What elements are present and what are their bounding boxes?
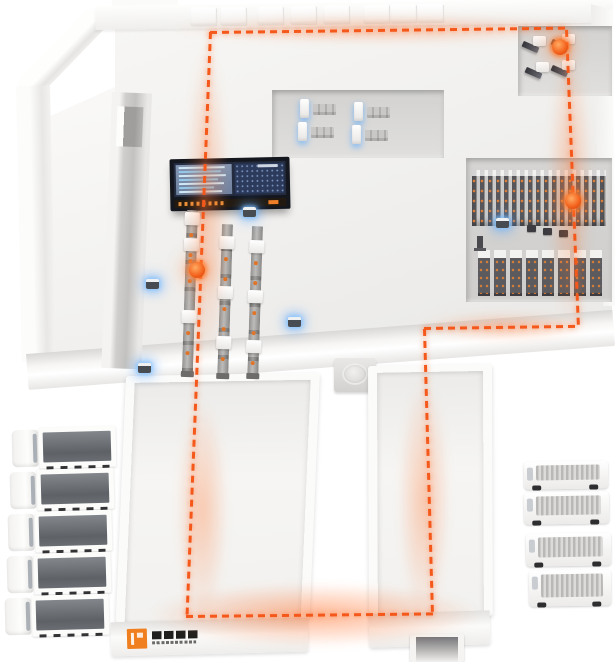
- agv-robot: [138, 363, 151, 373]
- truck: [7, 510, 112, 554]
- conveyor-box: [249, 240, 264, 253]
- van-wheel: [537, 602, 546, 607]
- machine-unit: [311, 127, 334, 138]
- delivery-van: [524, 491, 610, 524]
- truck-cab: [7, 556, 34, 594]
- dashboard-title-chip: [258, 164, 278, 167]
- van-roof: [536, 464, 600, 480]
- trailer-top: [39, 515, 108, 547]
- warehouse-scene: [0, 0, 615, 662]
- brand-logo-icon: [127, 629, 147, 649]
- delivery-van: [524, 460, 608, 489]
- agv-robot: [146, 279, 159, 289]
- van-windshield: [529, 540, 535, 553]
- conveyor-item: [254, 261, 258, 265]
- van-roof: [541, 573, 603, 597]
- trailer-top: [36, 599, 105, 631]
- van-roof: [536, 495, 601, 515]
- route-marker: [552, 39, 568, 55]
- truck-trailer: [33, 552, 111, 595]
- van-wheel: [589, 484, 598, 489]
- truck-windshield: [33, 434, 38, 463]
- trailer-top: [41, 473, 110, 505]
- doorway: [116, 106, 144, 147]
- truck-trailer: [38, 426, 116, 469]
- truck-windshield: [28, 560, 33, 589]
- workstation-machine: [300, 99, 338, 121]
- truck-cab: [10, 472, 37, 510]
- truck-cab: [8, 514, 35, 552]
- delivery-van: [526, 532, 612, 566]
- truck: [9, 468, 114, 512]
- van-wheel: [532, 485, 541, 490]
- rack-block: [494, 250, 506, 296]
- dashboard-chart-panel: [234, 163, 284, 194]
- truck-trailer: [34, 510, 112, 553]
- van-wheel: [534, 562, 543, 567]
- route-marker: [189, 262, 205, 278]
- workstation-machine: [298, 122, 336, 144]
- van-roof: [538, 536, 603, 557]
- truck-windshield: [26, 602, 31, 631]
- turntable-icon: [342, 363, 368, 385]
- truck-cab: [12, 430, 39, 468]
- rack-block: [526, 250, 538, 296]
- van-wheel: [532, 520, 541, 525]
- machine-tower: [354, 102, 363, 121]
- workstation-machine: [354, 102, 392, 124]
- truck-windshield: [31, 476, 36, 505]
- parcel-box: [527, 225, 536, 232]
- trailer-top: [38, 557, 107, 589]
- van-windshield: [527, 468, 533, 481]
- machine-tower: [352, 125, 361, 144]
- van-windshield: [527, 499, 533, 512]
- van-windshield: [532, 577, 538, 590]
- truck-windshield: [29, 518, 34, 547]
- truck: [6, 552, 111, 596]
- left-wall: [16, 85, 56, 362]
- machine-tower: [300, 99, 309, 118]
- truck: [11, 426, 116, 470]
- workstation-machine: [352, 125, 390, 147]
- rack-stand: [477, 236, 483, 249]
- van-wheel: [592, 561, 601, 566]
- delivery-van: [529, 569, 612, 606]
- dashboard-power-light: [268, 200, 278, 204]
- agv-robot: [496, 218, 509, 228]
- truck-wheels: [39, 633, 103, 638]
- machine-unit: [365, 130, 388, 141]
- rack-block: [510, 250, 522, 296]
- conveyor-box: [248, 290, 263, 303]
- van-wheel: [592, 601, 601, 606]
- conveyor-item: [251, 361, 255, 365]
- van-wheel: [590, 519, 599, 524]
- machine-unit: [313, 104, 336, 115]
- conveyor-item: [252, 331, 256, 335]
- truck: [4, 594, 109, 638]
- route-marker: [565, 193, 581, 209]
- machine-tower: [298, 122, 307, 141]
- conveyor-box: [246, 340, 261, 353]
- agv-robot: [243, 207, 256, 217]
- rack-block: [478, 250, 490, 296]
- agv-robot: [288, 317, 301, 327]
- trailer-top: [43, 431, 112, 463]
- truck-cab: [5, 598, 32, 636]
- conveyor-item: [252, 311, 256, 315]
- truck-trailer: [31, 594, 109, 637]
- sorting-machine: [525, 62, 549, 82]
- truck-trailer: [36, 468, 114, 511]
- machine-unit: [367, 107, 390, 118]
- conveyor-item: [253, 281, 257, 285]
